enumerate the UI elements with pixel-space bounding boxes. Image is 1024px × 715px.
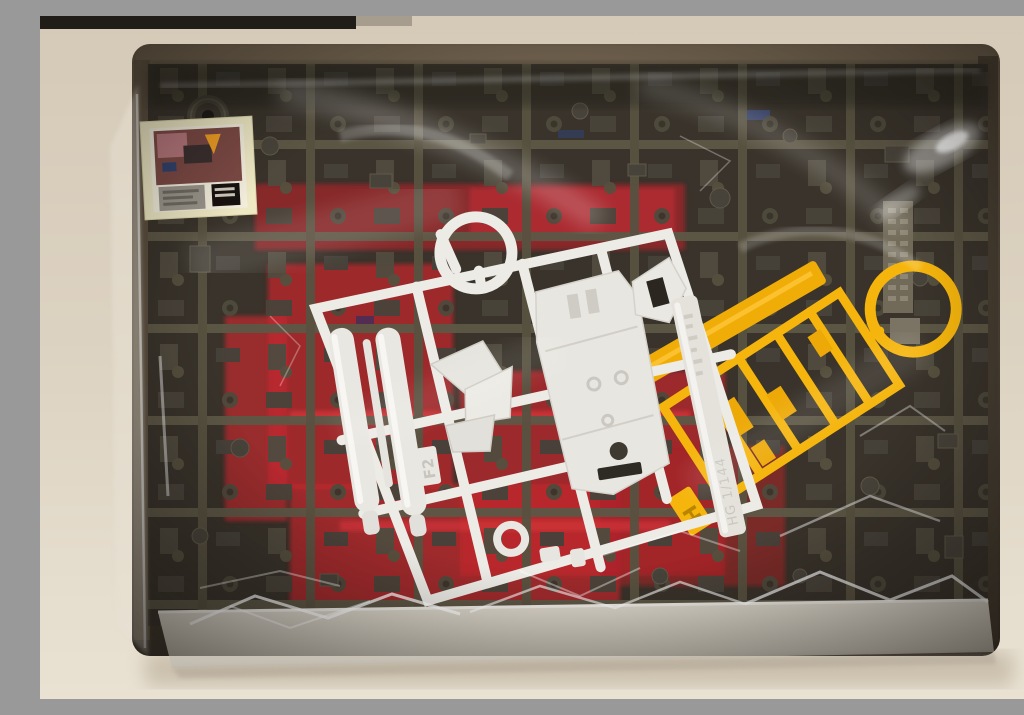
interior-vignette	[132, 44, 1000, 656]
photo-model-kit-box: H	[40, 16, 1024, 699]
shelf-bar	[40, 16, 356, 29]
photo-canvas: H	[40, 16, 1024, 699]
